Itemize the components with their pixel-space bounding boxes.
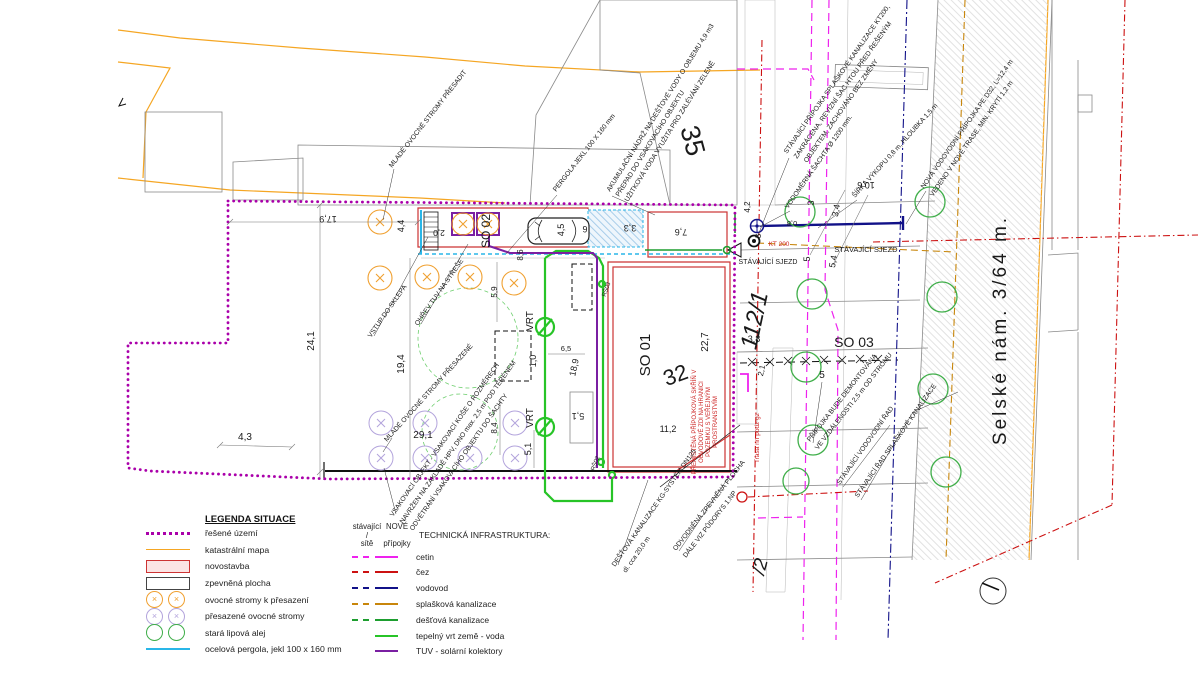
- label-sjezd-1: STÁVAJÍCÍ SJEZD: [739, 257, 798, 266]
- infra-item-cez: čez: [352, 564, 612, 580]
- label-trasa-nn: Trasa nn podz gz: [754, 413, 761, 463]
- dim: 3,4: [830, 203, 842, 217]
- linden-tree-symbol: [146, 624, 163, 641]
- fruit-tree-symbol: ×: [168, 591, 185, 608]
- annotation: PERGOLA JEKL 100 X 160 mm: [552, 113, 617, 194]
- dim: 6: [582, 224, 587, 234]
- legend: LEGENDA SITUACE řešené území katastrální…: [146, 514, 376, 658]
- pergola-line-symbol: [146, 648, 190, 650]
- infra-title: TECHNICKÁ INFRASTRUKTURA:: [419, 530, 550, 540]
- small-labels: STÁVAJÍCÍ SJEZD STÁVAJÍCÍ SJEZD KT 200 V…: [525, 241, 898, 474]
- infra-item-cetin: cetin: [352, 549, 612, 565]
- legend-title: LEGENDA SITUACE: [205, 514, 376, 525]
- dim: 0,8: [787, 219, 797, 228]
- street: [737, 0, 1092, 600]
- dim: 4,4: [396, 220, 406, 233]
- dim: 6,5: [561, 344, 571, 353]
- infra-item-vodovod: vodovod: [352, 580, 612, 596]
- dim: 3: [754, 233, 763, 238]
- dim: 8,6: [516, 249, 525, 261]
- cez-new-symbol: [375, 571, 398, 573]
- legend-item-resene-uzemi: řešené území: [146, 525, 376, 542]
- tuv-new-symbol: [375, 650, 398, 652]
- dim: 5,1: [572, 411, 585, 421]
- new-building-symbol: [146, 560, 190, 573]
- label-vrt-1: VRT: [525, 311, 536, 331]
- infra-item-splaskova: splašková kanalizace: [352, 596, 612, 612]
- annotation: ODVĚTRÁNÍ VSAKOVACÍHO OBJEKTU DO ŠACHTY: [407, 391, 509, 532]
- legend-item-presazene-stromy: × × přesazené ovocné stromy: [146, 608, 376, 625]
- infra-header-2: sítě přípojky: [352, 540, 612, 549]
- infra-item-destova: dešťová kanalizace: [352, 612, 612, 628]
- infra-item-vrt: tepelný vrt země - voda: [352, 628, 612, 644]
- cadastre-line-symbol: [146, 549, 190, 550]
- annotation: VSAKOVACÍ OBJEKT - VSAKOVACÍ KOŠE O ROZM…: [387, 361, 501, 518]
- parcel-35: 35: [674, 122, 711, 159]
- legend-item-novostavba: novostavba: [146, 558, 376, 575]
- dim: 18,9: [567, 358, 580, 377]
- infra-item-tuv: TUV - solární kolektory: [352, 643, 612, 659]
- street-name: Selské nám. 3/64 m.: [990, 215, 1011, 445]
- infrastructure-legend: TECHNICKÁ INFRASTRUKTURA: stávající / NO…: [352, 523, 612, 659]
- linden-tree-symbol: [168, 624, 185, 641]
- cetin-existing-symbol: [352, 556, 369, 558]
- legend-item-lipova-alej: stará lipová alej: [146, 625, 376, 642]
- dim: 3,8: [748, 334, 761, 344]
- network-destova: [645, 214, 735, 254]
- dim: 4,3: [238, 432, 252, 443]
- dim: 4,2: [743, 201, 752, 213]
- annotation: PŘEPAD DO VSAKOVACÍHO OBJEKTU: [613, 88, 686, 198]
- legend-item-katastralni-mapa: katastrální mapa: [146, 542, 376, 559]
- annotation: MLADÉ OVOCNÉ STROMY PŘESADIT: [386, 68, 468, 169]
- object-so01: SO 01: [637, 334, 654, 377]
- legend-item-ovocne-stromy: × × ovocné stromy k přesazení: [146, 591, 376, 608]
- dim: 8,4: [490, 422, 499, 434]
- boundary-symbol: [146, 532, 190, 535]
- dim: 11,2: [660, 424, 677, 434]
- destova-new-symbol: [375, 619, 398, 621]
- legend-item-zpevnena-plocha: zpevněná plocha: [146, 575, 376, 592]
- dim: 5,4: [827, 254, 839, 268]
- moved-tree-symbol: ×: [168, 608, 185, 625]
- dim: 5: [802, 256, 812, 261]
- annotation: AKUMULAČNÍ NÁDRŽ NA DEŠŤOVÉ VODY O OBJEM…: [604, 22, 716, 193]
- object-so03: SO 03: [834, 334, 874, 350]
- label-sjezd-2: STÁVAJÍCÍ SJEZD: [834, 245, 898, 254]
- red-note-line3: POZEMKU S VEŘEJNÝM: [704, 387, 712, 457]
- dim: 29,1: [413, 430, 433, 441]
- destova-existing-symbol: [352, 619, 369, 621]
- annotation: VSTUP DO SKLEPA: [367, 284, 409, 340]
- splaskova-existing-symbol: [352, 603, 369, 605]
- dim: 2,1: [756, 364, 767, 377]
- annotation: DEŠŤOVÁ KANALIZACE KG-SYSTÉM DN125: [609, 447, 698, 568]
- site-plan-page: 35 32 112/1 /2 SO 01 SO 02 SO 03 Selské …: [0, 0, 1200, 675]
- vodovod-existing-symbol: [352, 587, 369, 589]
- dim: 17,9: [319, 214, 337, 224]
- dim: 4,5: [556, 224, 566, 237]
- dim: 2,0: [433, 228, 445, 238]
- fruit-tree-symbol: ×: [146, 591, 163, 608]
- dim: 3,3: [624, 223, 637, 233]
- legend-item-pergola: ocelová pergola, jekl 100 x 160 mm: [146, 641, 376, 658]
- vrt-new-symbol: [375, 635, 398, 637]
- red-note-line2: OBVODOVÉ ZDI NA HRANICI: [698, 381, 705, 463]
- north-arrow-icon: [980, 578, 1006, 604]
- vodovod-new-symbol: [375, 587, 398, 589]
- annotation: ZAKRÁCENA, REVIZNÍ ŠAC HTOU PŘED ŘEŠENÝM: [791, 19, 893, 160]
- label-rs02: RŠ02: [590, 455, 602, 472]
- existing-buildings: [119, 0, 928, 592]
- dim: 7,6: [675, 227, 688, 237]
- cez-existing-symbol: [352, 571, 369, 573]
- parcel-32: 32: [660, 359, 692, 391]
- dim: 5,9: [490, 286, 499, 298]
- red-note-line4: PROSTRANSTVÍM: [712, 396, 719, 448]
- paved-area-symbol: [146, 577, 190, 590]
- dim: 1,0: [528, 355, 538, 368]
- dim: 5,1: [523, 443, 533, 456]
- dim: 24,1: [306, 331, 317, 351]
- splaskova-new-symbol: [375, 603, 398, 605]
- dim: 5: [819, 370, 825, 381]
- cetin-new-symbol: [375, 556, 398, 558]
- dim: 19,4: [396, 354, 407, 374]
- label-kt200: KT 200: [769, 241, 790, 248]
- dim: 22,7: [700, 332, 711, 352]
- moved-tree-symbol: ×: [146, 608, 163, 625]
- dim: 3: [806, 200, 816, 205]
- object-so02: SO 02: [479, 214, 493, 248]
- label-vrt-2: VRT: [525, 408, 536, 428]
